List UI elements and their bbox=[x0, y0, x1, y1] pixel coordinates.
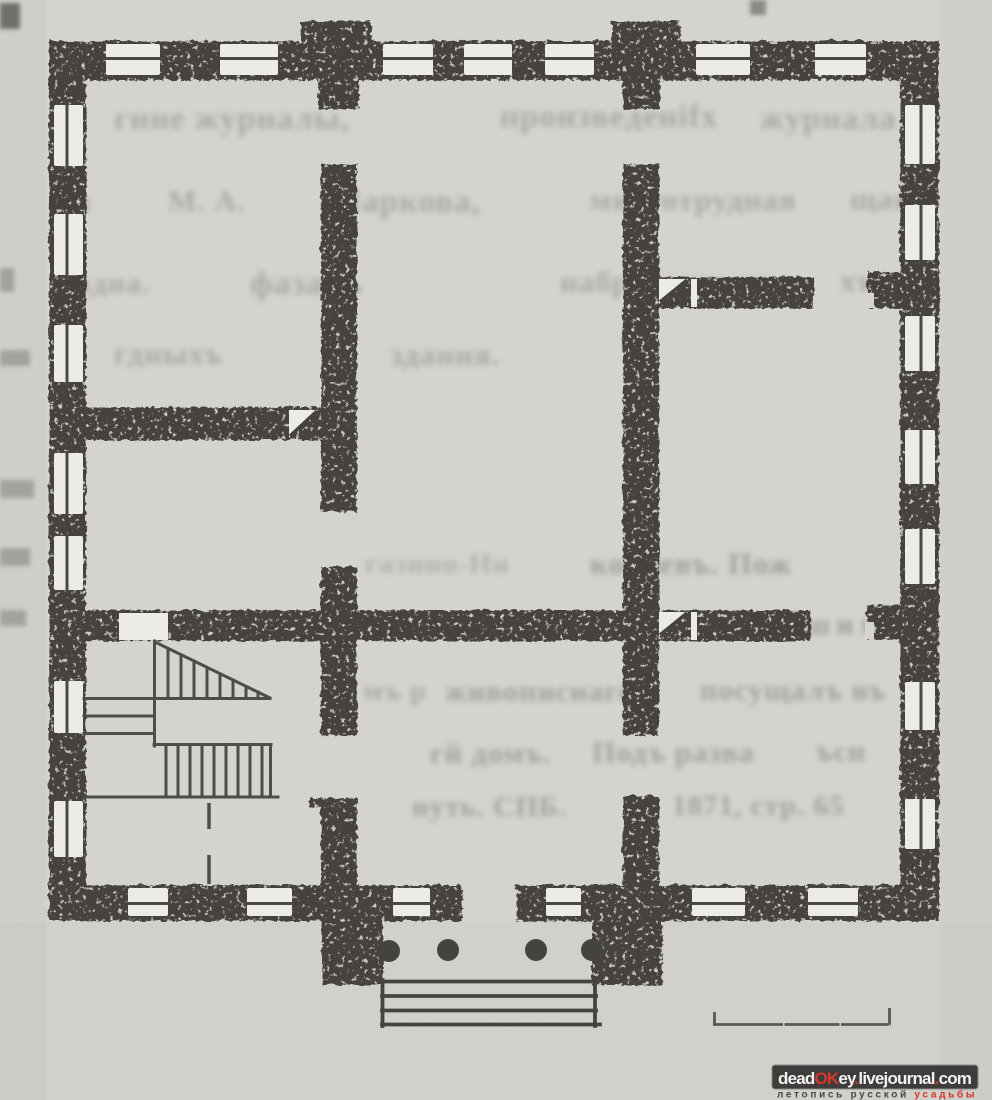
svg-text:живописнаго: живописнаго bbox=[445, 675, 634, 708]
svg-text:колаевъ. Пож: колаевъ. Пож bbox=[590, 546, 792, 581]
svg-text:1871, стр. 65: 1871, стр. 65 bbox=[672, 790, 845, 822]
svg-text:многотрудная: многотрудная bbox=[590, 182, 797, 217]
svg-text:гй домъ.: гй домъ. bbox=[430, 737, 551, 770]
svg-text:нуть. СПБ.: нуть. СПБ. bbox=[412, 791, 567, 823]
svg-text:журнала: журнала bbox=[760, 101, 897, 137]
svg-text:гнне журналы,: гнне журналы, bbox=[114, 101, 350, 137]
svg-text:Подъ разва: Подъ разва bbox=[592, 736, 755, 769]
svg-text:посущалъ въ: посущалъ въ bbox=[700, 674, 887, 707]
svg-text:летопись русской усадьбы: летопись русской усадьбы bbox=[777, 1089, 977, 1100]
svg-text:ъсн: ъсн bbox=[815, 735, 866, 768]
svg-text:здания.: здания. bbox=[390, 337, 500, 372]
svg-text:deadOKey.livejournal.com: deadOKey.livejournal.com bbox=[778, 1069, 972, 1088]
svg-text:мъ р: мъ р bbox=[363, 675, 427, 707]
svg-text:гдныхъ: гдныхъ bbox=[114, 336, 223, 371]
svg-text:произведенifх: произведенifх bbox=[500, 99, 718, 135]
svg-text:газино-Ни: газино-Ни bbox=[365, 548, 510, 580]
svg-text:М. А.: М. А. bbox=[168, 185, 245, 218]
